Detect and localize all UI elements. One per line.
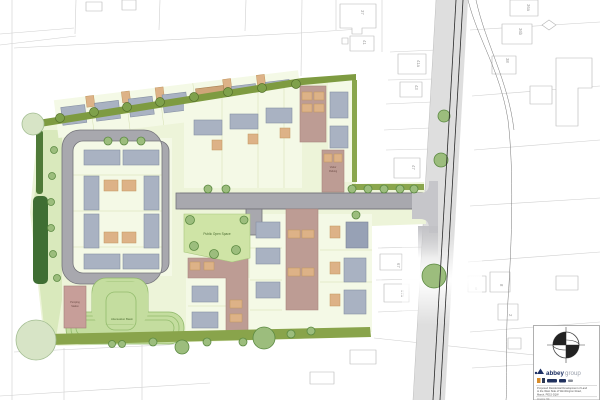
pumping-station-label-1: Pumping — [70, 301, 80, 304]
svg-text:March, PE15 0QW: March, PE15 0QW — [537, 392, 559, 396]
attenuation-basin-label: Attenuation Basin — [111, 317, 133, 321]
plot-number-43: 43 — [414, 85, 419, 90]
large-tree-icon — [16, 320, 56, 360]
svg-text:Visitor: Visitor — [330, 166, 337, 169]
company-logo-light: group — [565, 370, 581, 377]
plot-number-36a: 36a — [526, 4, 531, 12]
plot-number-47: 47 — [411, 165, 416, 170]
plot-number-67: 67 — [396, 263, 401, 268]
public-open-space-label: Public Open Space — [203, 232, 231, 236]
plot-number-41a: 41a — [416, 60, 421, 68]
pumping-station: Pumping Station — [64, 286, 86, 328]
plot-number-36b: 36b — [518, 28, 523, 36]
plot-number-38: 38 — [505, 58, 510, 63]
title-block: abbey group Proposed Residential Develop… — [534, 326, 600, 400]
plot-number-37: 37 — [360, 10, 365, 15]
svg-text:Parking: Parking — [329, 170, 338, 173]
company-logo-bold: abbey — [546, 370, 564, 377]
site-plan-canvas: 37 41 41a 43 47 67 67a 36a 36b 38 6 8 2 — [0, 0, 600, 400]
plot-number-41: 41 — [362, 40, 367, 45]
large-tree-icon — [422, 264, 446, 288]
pumping-station-label-2: Station — [71, 305, 79, 308]
large-tree-icon — [22, 113, 44, 135]
site-plan-drawing: 37 41 41a 43 47 67 67a 36a 36b 38 6 8 2 — [0, 0, 600, 400]
